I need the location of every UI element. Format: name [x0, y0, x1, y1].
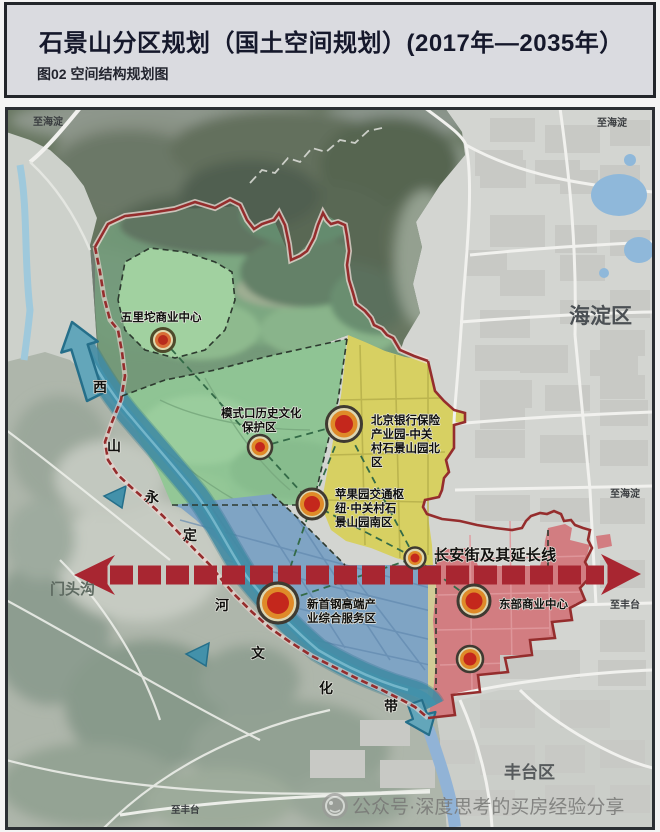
svg-text:苹果园交通枢: 苹果园交通枢	[335, 487, 404, 501]
svg-text:河: 河	[215, 597, 229, 613]
svg-text:西: 西	[93, 379, 107, 395]
svg-text:新首钢高端产: 新首钢高端产	[307, 597, 376, 611]
svg-text:海淀区: 海淀区	[569, 304, 632, 328]
svg-text:至海淀: 至海淀	[33, 115, 64, 128]
svg-text:五里坨商业中心: 五里坨商业中心	[121, 310, 202, 324]
svg-text:定: 定	[183, 527, 197, 543]
svg-text:模式口历史文化: 模式口历史文化	[221, 406, 302, 420]
svg-text:门头沟: 门头沟	[50, 580, 95, 598]
svg-text:至丰台: 至丰台	[610, 598, 640, 611]
svg-text:村石景山园北: 村石景山园北	[371, 441, 440, 455]
svg-text:公众号·深度思考的买房经验分享: 公众号·深度思考的买房经验分享	[352, 796, 624, 818]
svg-text:景山园南区: 景山园南区	[334, 515, 393, 529]
svg-text:长安街及其延长线: 长安街及其延长线	[434, 546, 556, 564]
svg-text:北京银行保险: 北京银行保险	[371, 413, 440, 427]
svg-text:化: 化	[319, 680, 333, 696]
svg-text:丰台区: 丰台区	[504, 762, 555, 782]
svg-text:带: 带	[384, 698, 398, 714]
svg-text:业综合服务区: 业综合服务区	[307, 611, 376, 625]
svg-text:纽·中关村石: 纽·中关村石	[335, 501, 396, 515]
svg-text:永: 永	[144, 489, 160, 505]
svg-text:至海淀: 至海淀	[610, 487, 641, 500]
svg-text:至丰台: 至丰台	[171, 804, 200, 816]
svg-text:保护区: 保护区	[241, 420, 277, 434]
svg-text:区: 区	[371, 456, 383, 469]
svg-text:山: 山	[107, 438, 121, 454]
svg-text:文: 文	[251, 645, 266, 661]
svg-text:至海淀: 至海淀	[597, 116, 628, 129]
svg-text:东部商业中心: 东部商业中心	[499, 597, 568, 611]
svg-text:产业园-中关: 产业园-中关	[371, 427, 433, 441]
